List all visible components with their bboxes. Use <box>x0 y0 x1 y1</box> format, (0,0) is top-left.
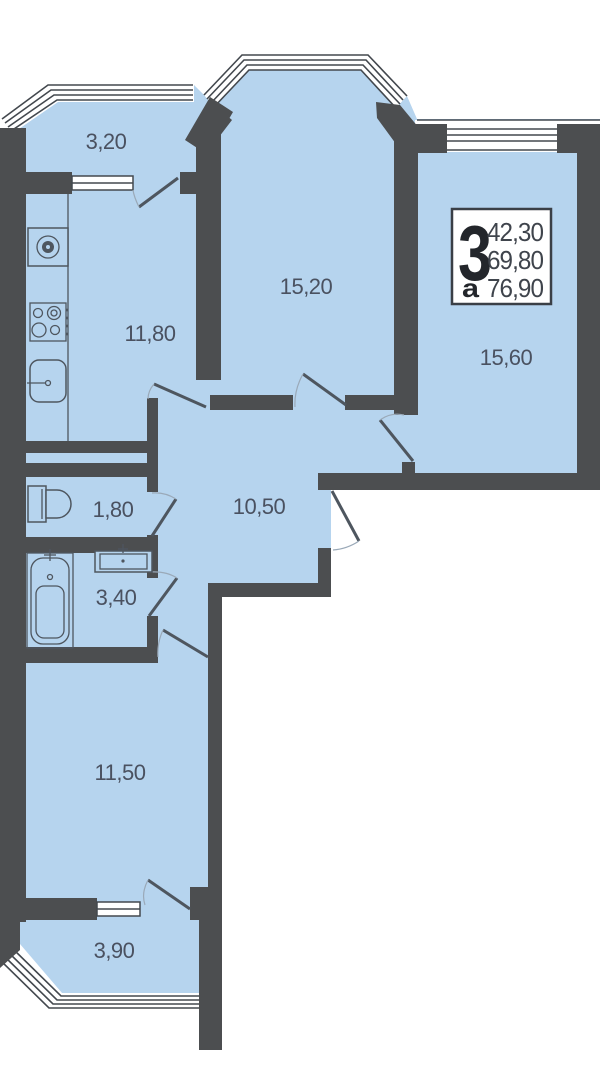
label-bathroom: 3,40 <box>96 585 137 610</box>
label-bedroom-right: 15,60 <box>480 345 533 370</box>
label-bedroom-left: 11,50 <box>95 760 146 785</box>
kitchen-balcony-window <box>72 176 133 190</box>
entrance-door <box>332 491 359 550</box>
info-area-living: 42,30 <box>487 217 543 247</box>
floor-plan-page: 3,20 11,80 15,20 15,60 10,50 1,80 3,40 1… <box>0 0 600 1078</box>
toilet-icon <box>28 486 71 522</box>
kitchen-sink-icon <box>27 360 66 402</box>
label-living-room: 15,20 <box>280 274 333 299</box>
apartment-info-box: 3 а 42,30 69,80 76,90 <box>452 209 551 304</box>
label-kitchen: 11,80 <box>125 321 176 346</box>
washing-machine-icon <box>28 228 68 266</box>
floor-plan: 3,20 11,80 15,20 15,60 10,50 1,80 3,40 1… <box>0 0 600 1078</box>
label-hall: 10,50 <box>233 494 286 519</box>
info-letter: а <box>462 273 480 303</box>
label-wc: 1,80 <box>93 497 134 522</box>
label-balcony-bottom: 3,90 <box>94 938 135 963</box>
info-area-total: 76,90 <box>487 273 543 303</box>
label-balcony-top: 3,20 <box>86 129 127 154</box>
bedroom-left-balcony-window <box>97 902 140 916</box>
info-area-main: 69,80 <box>487 245 543 275</box>
